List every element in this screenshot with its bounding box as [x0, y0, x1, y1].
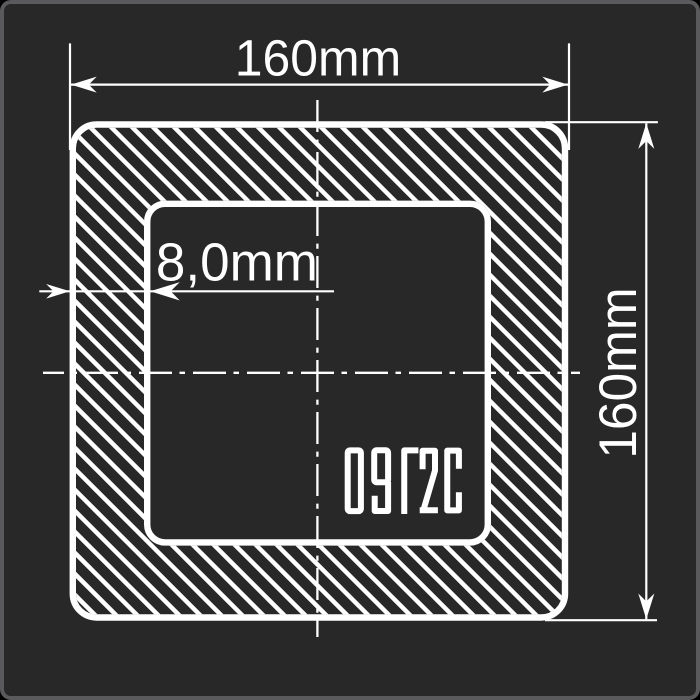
svg-text:8,0mm: 8,0mm [156, 233, 318, 292]
svg-text:160mm: 160mm [235, 30, 401, 87]
svg-text:160mm: 160mm [589, 287, 648, 458]
